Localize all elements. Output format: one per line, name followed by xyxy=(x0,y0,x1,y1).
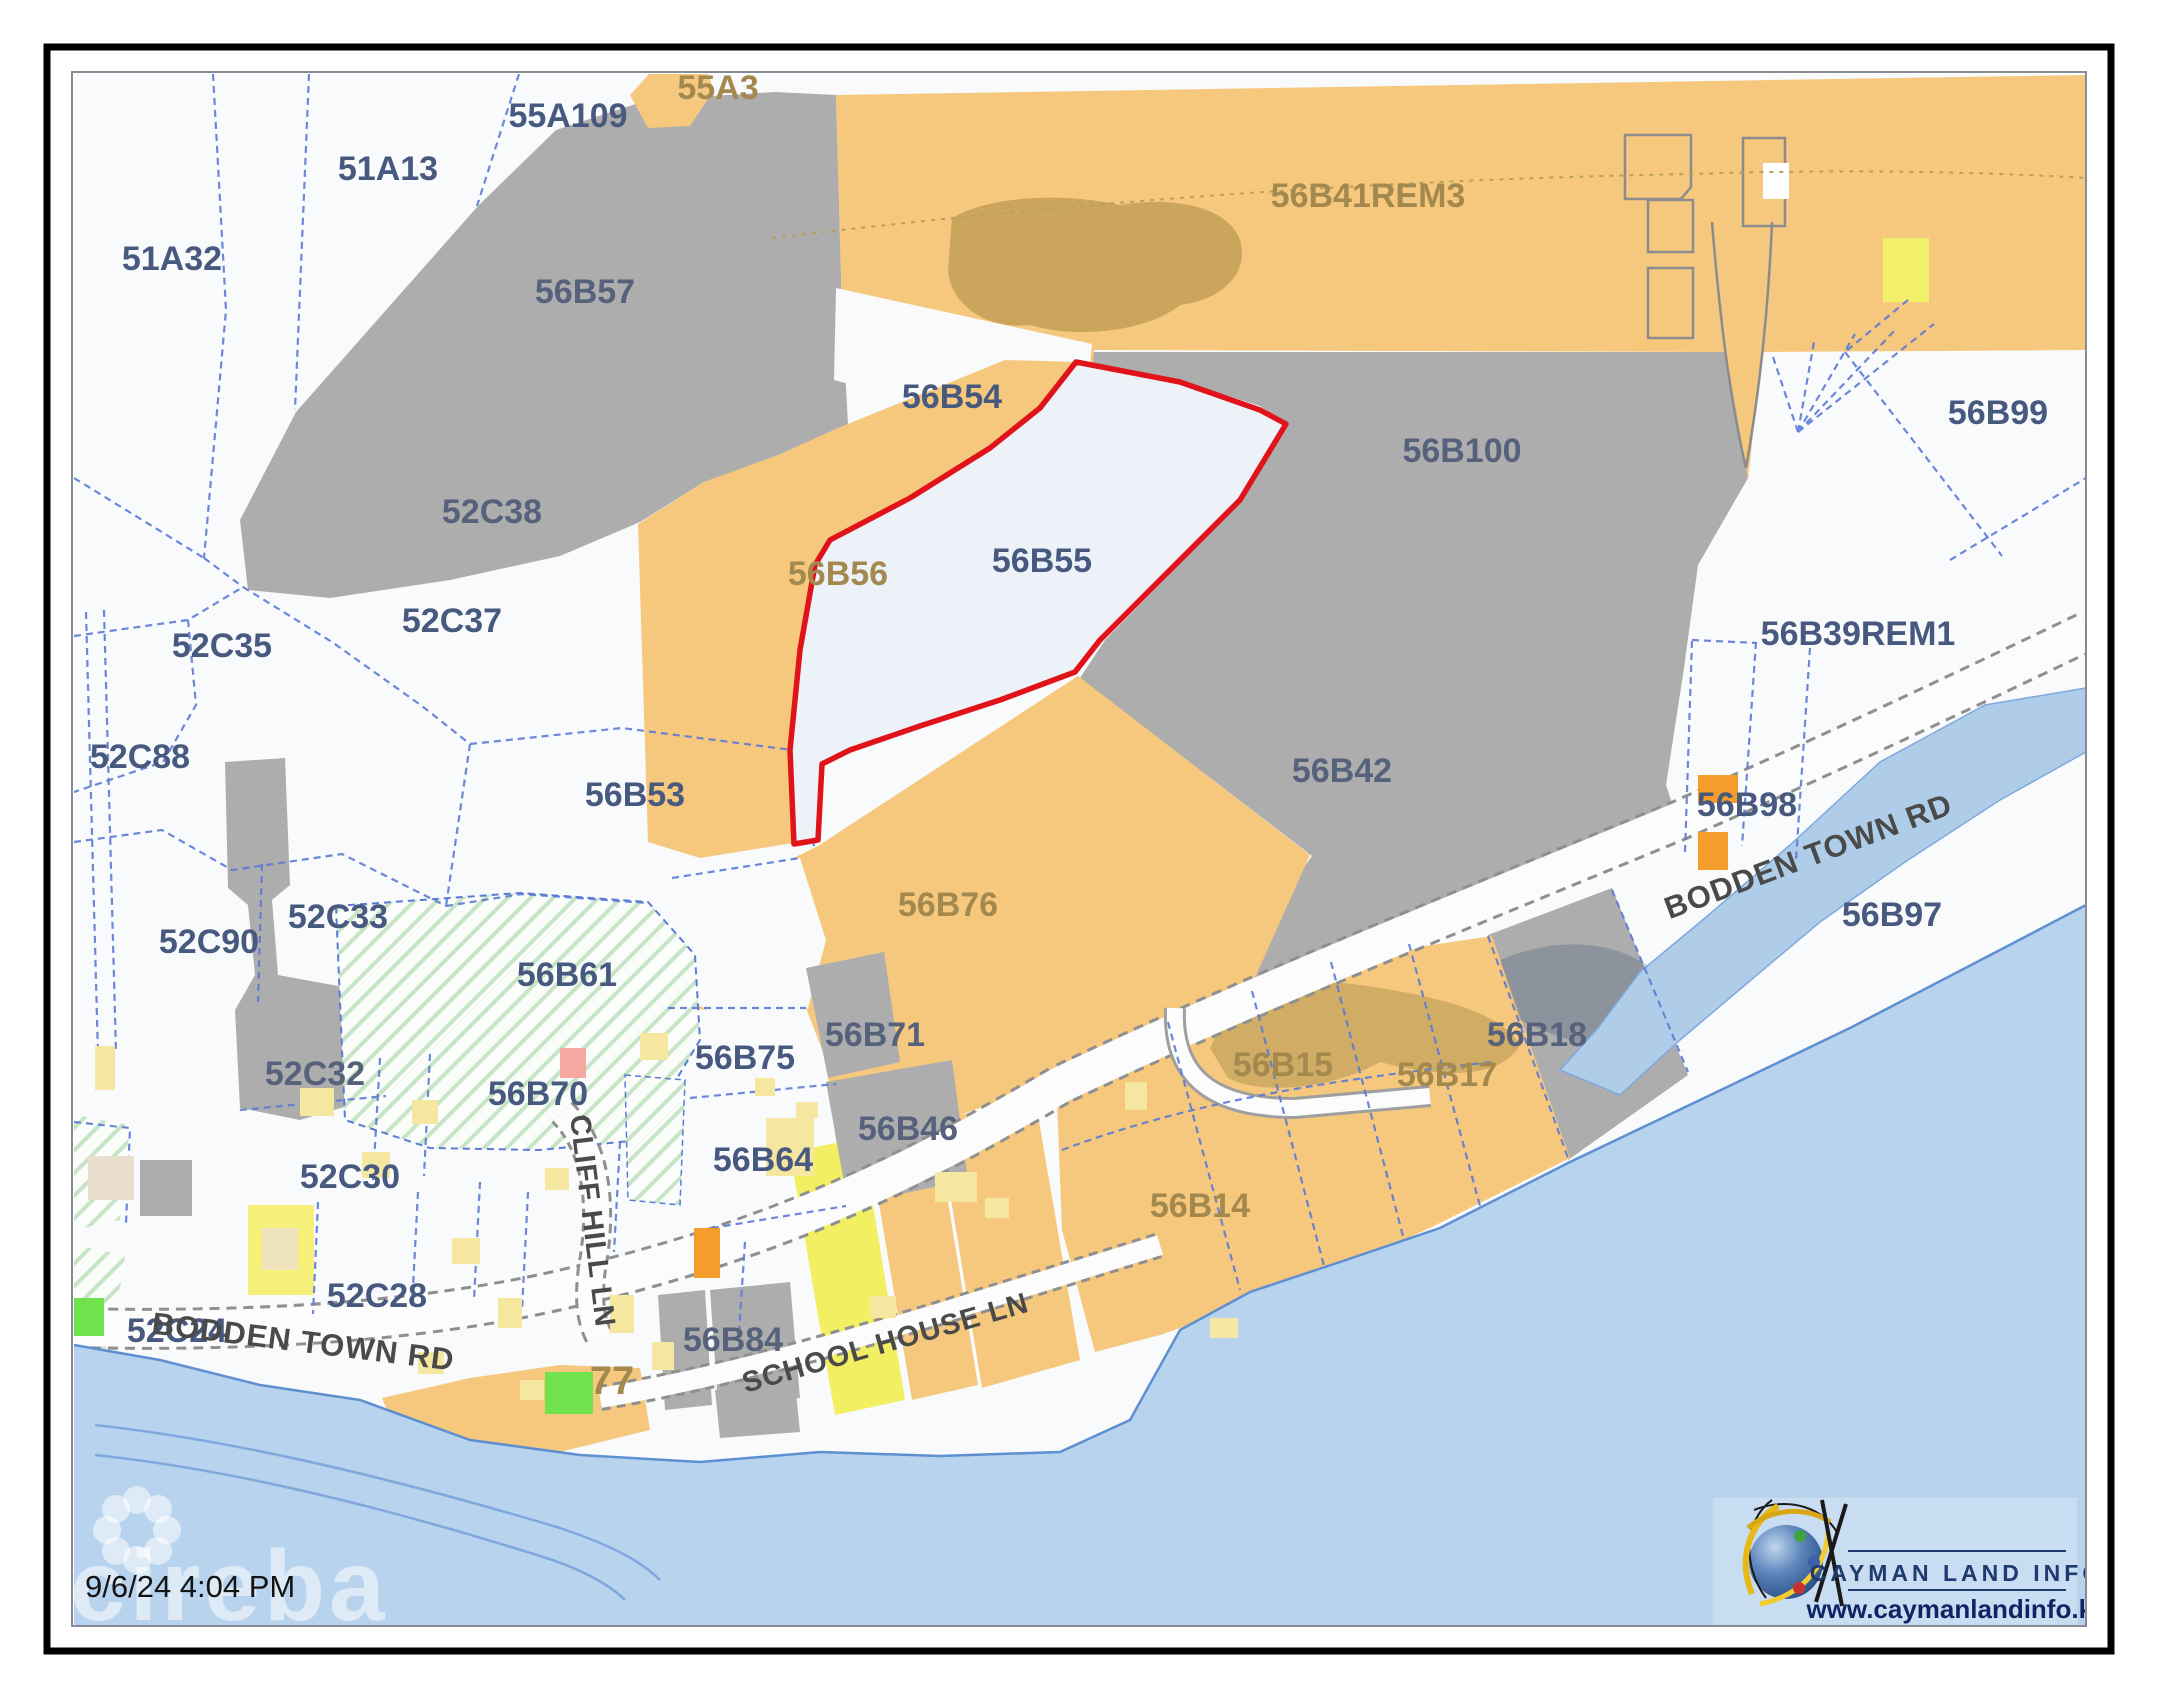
label-52C90: 52C90 xyxy=(159,923,259,961)
building-white-notch xyxy=(1763,163,1789,199)
logo-title: CAYMAN LAND INFO xyxy=(1810,1560,2104,1586)
label-56B71: 56B71 xyxy=(825,1016,925,1054)
building-beige xyxy=(88,1156,134,1200)
building-green-large xyxy=(545,1372,593,1414)
building-pink xyxy=(560,1048,586,1078)
label-56B15: 56B15 xyxy=(1233,1046,1333,1084)
label-56B99: 56B99 xyxy=(1948,394,2048,432)
label-56B84: 56B84 xyxy=(683,1321,783,1359)
label-56B75: 56B75 xyxy=(695,1039,795,1077)
label-52C28: 52C28 xyxy=(327,1277,427,1315)
parcel-gray-small xyxy=(140,1160,192,1216)
label-56B17: 56B17 xyxy=(1397,1056,1497,1094)
label-56B97: 56B97 xyxy=(1842,896,1942,934)
label-56B57: 56B57 xyxy=(535,273,635,311)
label-51A32: 51A32 xyxy=(122,240,222,278)
label-56B76: 56B76 xyxy=(898,886,998,924)
label-56B18: 56B18 xyxy=(1487,1016,1587,1054)
parcel-yellow-topright xyxy=(1883,238,1929,302)
label-52C33: 52C33 xyxy=(288,898,388,936)
map-export-page: 51A3251A1355A10955A356B5756B41REM356B545… xyxy=(0,0,2168,1700)
label-52C32: 52C32 xyxy=(265,1055,365,1093)
label-52C88: 52C88 xyxy=(90,738,190,776)
label-56B39REM1: 56B39REM1 xyxy=(1761,615,1956,653)
building-green-small xyxy=(70,1298,104,1336)
label-77: 77 xyxy=(590,1359,635,1403)
label-55A109: 55A109 xyxy=(508,97,627,135)
label-56B64: 56B64 xyxy=(713,1141,813,1179)
label-56B55: 56B55 xyxy=(992,542,1092,580)
label-52C35: 52C35 xyxy=(172,627,272,665)
logo-url: www.caymanlandinfo.ky xyxy=(1805,1594,2108,1624)
label-56B42: 56B42 xyxy=(1292,752,1392,790)
timestamp: 9/6/24 4:04 PM xyxy=(85,1569,295,1604)
label-55A3: 55A3 xyxy=(677,69,758,107)
label-56B14: 56B14 xyxy=(1150,1187,1250,1225)
label-56B61: 56B61 xyxy=(517,956,617,994)
cayman-land-info-logo: CAYMAN LAND INFO www.caymanlandinfo.ky xyxy=(1712,1497,2108,1628)
label-56B46: 56B46 xyxy=(858,1110,958,1148)
label-56B100: 56B100 xyxy=(1402,432,1521,470)
label-56B56: 56B56 xyxy=(788,555,888,593)
label-56B41REM3: 56B41REM3 xyxy=(1271,177,1466,215)
label-52C30: 52C30 xyxy=(300,1158,400,1196)
label-52C38: 52C38 xyxy=(442,493,542,531)
hatched-strip-right xyxy=(625,1075,685,1205)
label-56B70: 56B70 xyxy=(488,1075,588,1113)
label-56B98: 56B98 xyxy=(1697,786,1797,824)
label-56B54: 56B54 xyxy=(902,378,1002,416)
label-51A13: 51A13 xyxy=(338,150,438,188)
label-52C37: 52C37 xyxy=(402,602,502,640)
cadastral-map: 51A3251A1355A10955A356B5756B41REM356B545… xyxy=(0,0,2168,1700)
label-56B53: 56B53 xyxy=(585,776,685,814)
